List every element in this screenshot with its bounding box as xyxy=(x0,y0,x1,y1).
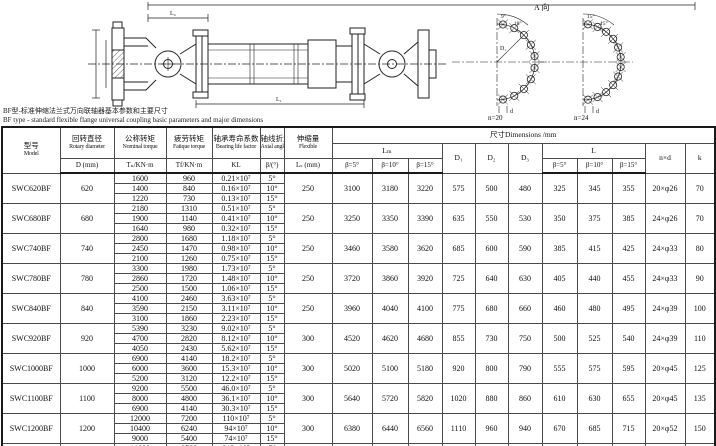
col-header-l-beta15: β=15° xyxy=(612,159,645,174)
cell-axial-angle: 10° xyxy=(260,424,284,434)
cell-bearing-life: 0.13×10⁷ xyxy=(212,194,260,204)
cell-nominal-torque: 6900 xyxy=(114,354,166,364)
cell-lm-beta10: 6440 xyxy=(372,414,408,444)
bolt-view-n20: D₁ 9° 18° d n=20 xyxy=(452,13,547,122)
cell-fatigue-torque: 1310 xyxy=(166,204,212,214)
shaft-side-view: L₄ xyxy=(88,2,695,108)
cell-nominal-torque: 3590 xyxy=(114,304,166,314)
cell-flexible: 300 xyxy=(284,384,332,414)
col-header-lm-beta15: β=15° xyxy=(408,159,442,174)
cell-lm-beta10: 5100 xyxy=(372,354,408,384)
cell-l-beta10: 575 xyxy=(577,354,612,384)
cell-bearing-life: 3.11×10⁷ xyxy=(212,304,260,314)
cell-axial-angle: 15° xyxy=(260,374,284,384)
cell-fatigue-torque: 4800 xyxy=(166,394,212,404)
cell-lm-beta15: 3390 xyxy=(408,204,442,234)
table-row: SWC1200BF1200120007200110×10⁷5°300638064… xyxy=(2,414,715,424)
cell-lm-beta5: 3100 xyxy=(332,173,372,204)
cell-k: 150 xyxy=(685,414,715,444)
col-header-k: k xyxy=(685,144,715,174)
cell-model: SWC920BF xyxy=(2,324,60,354)
cell-fatigue-torque: 1680 xyxy=(166,234,212,244)
cell-k: 70 xyxy=(685,173,715,204)
cell-nxd: 24×φ33 xyxy=(645,264,685,294)
cell-bearing-life: 94×10⁷ xyxy=(212,424,260,434)
dim-label-d: d xyxy=(596,109,599,115)
cell-nominal-torque: 1400 xyxy=(114,184,166,194)
cell-nxd: 20×φ45 xyxy=(645,354,685,384)
cell-rotary-diameter: 1000 xyxy=(60,354,114,384)
cell-d2: 600 xyxy=(475,234,508,264)
cell-fatigue-torque: 5500 xyxy=(166,384,212,394)
cell-k: 135 xyxy=(685,384,715,414)
cell-rotary-diameter: 840 xyxy=(60,294,114,324)
caption-block: BF型-标准伸缩法兰式万向联轴器基本参数和主要尺寸 BF type - stan… xyxy=(3,107,263,124)
unit-fatigue-torque: Tf/KN·m xyxy=(166,159,212,174)
cell-k: 80 xyxy=(685,234,715,264)
angle-label: 15° xyxy=(587,13,595,20)
cell-d1: 635 xyxy=(442,204,475,234)
cell-l-beta10: 480 xyxy=(577,294,612,324)
cell-fatigue-torque: 2430 xyxy=(166,344,212,354)
col-header-fatigue-torque: 疲劳转矩Fatique torque xyxy=(166,127,212,159)
cell-lm-beta5: 5020 xyxy=(332,354,372,384)
caption-cn: BF型-标准伸缩法兰式万向联轴器基本参数和主要尺寸 xyxy=(3,107,263,116)
dim-label-d1: D₁ xyxy=(500,46,506,52)
cell-bearing-life: 0.75×10⁷ xyxy=(212,254,260,264)
cell-lm-beta15: 6560 xyxy=(408,414,442,444)
cell-nominal-torque: 2860 xyxy=(114,274,166,284)
cell-d3: 940 xyxy=(508,414,542,444)
col-header-axial-angle: 轴线折角Axial angle xyxy=(260,127,284,159)
cell-flexible: 250 xyxy=(284,173,332,204)
cell-fatigue-torque: 4140 xyxy=(166,404,212,414)
cell-l-beta10: 415 xyxy=(577,234,612,264)
cell-nominal-torque: 12000 xyxy=(114,414,166,424)
cell-model: SWC680BF xyxy=(2,204,60,234)
cell-d2: 730 xyxy=(475,324,508,354)
cell-fatigue-torque: 2820 xyxy=(166,334,212,344)
cell-bearing-life: 110×10⁷ xyxy=(212,414,260,424)
cell-k: 125 xyxy=(685,354,715,384)
cell-fatigue-torque: 5400 xyxy=(166,434,212,444)
cell-model: SWC1000BF xyxy=(2,354,60,384)
cell-d1: 725 xyxy=(442,264,475,294)
cell-fatigue-torque: 960 xyxy=(166,173,212,184)
cell-fatigue-torque: 4140 xyxy=(166,354,212,364)
cell-fatigue-torque: 1860 xyxy=(166,314,212,324)
cell-nominal-torque: 2180 xyxy=(114,204,166,214)
cell-l-beta10: 440 xyxy=(577,264,612,294)
cell-fatigue-torque: 1500 xyxy=(166,284,212,294)
cell-axial-angle: 10° xyxy=(260,394,284,404)
cell-flexible: 250 xyxy=(284,234,332,264)
dim-label-d: d xyxy=(510,109,513,115)
cell-lm-beta15: 4100 xyxy=(408,294,442,324)
cell-l-beta15: 540 xyxy=(612,324,645,354)
cell-d3: 590 xyxy=(508,234,542,264)
angle-label: 9° xyxy=(501,13,506,20)
col-header-bearing-life: 轴承寿命系数Bearing life factor xyxy=(212,127,260,159)
cell-nominal-torque: 6900 xyxy=(114,404,166,414)
cell-bearing-life: 30.3×10⁷ xyxy=(212,404,260,414)
cell-nominal-torque: 2450 xyxy=(114,244,166,254)
cell-l-beta15: 455 xyxy=(612,264,645,294)
cell-nominal-torque: 4100 xyxy=(114,294,166,304)
cell-nominal-torque: 4700 xyxy=(114,334,166,344)
n20-label: n=20 xyxy=(488,114,503,122)
cell-lm-beta5: 3960 xyxy=(332,294,372,324)
cell-axial-angle: 15° xyxy=(260,344,284,354)
table-row: SWC740BF740280016801.18×10⁷5°25034603580… xyxy=(2,234,715,244)
cell-fatigue-torque: 2460 xyxy=(166,294,212,304)
cell-nominal-torque: 8000 xyxy=(114,394,166,404)
view-a-label: A 向 xyxy=(534,2,549,12)
cell-lm-beta5: 3250 xyxy=(332,204,372,234)
cell-axial-angle: 10° xyxy=(260,364,284,374)
dim-label-l1: L₁ xyxy=(276,97,282,103)
cell-lm-beta5: 3720 xyxy=(332,264,372,294)
cell-d1: 575 xyxy=(442,173,475,204)
cell-bearing-life: 36.1×10⁷ xyxy=(212,394,260,404)
cell-nxd: 20×φ52 xyxy=(645,414,685,444)
cell-nxd: 24×φ39 xyxy=(645,294,685,324)
cell-fatigue-torque: 7200 xyxy=(166,414,212,424)
cell-bearing-life: 0.16×10⁷ xyxy=(212,184,260,194)
cell-d1: 1110 xyxy=(442,414,475,444)
col-header-model: 型号Model xyxy=(2,127,60,173)
cell-l-beta5: 500 xyxy=(542,324,577,354)
cell-fatigue-torque: 3230 xyxy=(166,324,212,334)
table-row: SWC920BF920539032309.02×10⁷5°30045204620… xyxy=(2,324,715,334)
col-header-nxd: n×d xyxy=(645,144,685,174)
cell-nominal-torque: 9000 xyxy=(114,434,166,444)
cell-l-beta10: 630 xyxy=(577,384,612,414)
cell-axial-angle: 10° xyxy=(260,244,284,254)
cell-nominal-torque: 1220 xyxy=(114,194,166,204)
cell-axial-angle: 5° xyxy=(260,354,284,364)
cell-fatigue-torque: 730 xyxy=(166,194,212,204)
cell-d1: 775 xyxy=(442,294,475,324)
cell-rotary-diameter: 620 xyxy=(60,173,114,204)
col-header-dimensions: 尺寸Dimensions /mm xyxy=(332,127,715,144)
cell-axial-angle: 5° xyxy=(260,234,284,244)
cell-nominal-torque: 3300 xyxy=(114,264,166,274)
cell-d1: 685 xyxy=(442,234,475,264)
cell-lm-beta5: 5640 xyxy=(332,384,372,414)
cell-lm-beta5: 6380 xyxy=(332,414,372,444)
cell-axial-angle: 15° xyxy=(260,404,284,414)
cell-bearing-life: 74×10⁷ xyxy=(212,434,260,444)
cell-nominal-torque: 2500 xyxy=(114,284,166,294)
cell-lm-beta15: 3620 xyxy=(408,234,442,264)
cell-axial-angle: 10° xyxy=(260,304,284,314)
cell-d3: 750 xyxy=(508,324,542,354)
parameters-table: 型号Model 回转直径Rotary diameter 公称转矩Nominal … xyxy=(1,126,716,446)
cell-nominal-torque: 2100 xyxy=(114,254,166,264)
cell-fatigue-torque: 840 xyxy=(166,184,212,194)
cell-axial-angle: 15° xyxy=(260,284,284,294)
cell-lm-beta10: 3350 xyxy=(372,204,408,234)
table-row: SWC1000BF10006900414018.2×10⁷5°300502051… xyxy=(2,354,715,364)
cell-axial-angle: 5° xyxy=(260,414,284,424)
cell-bearing-life: 5.62×10⁷ xyxy=(212,344,260,354)
cell-d2: 550 xyxy=(475,204,508,234)
cell-d3: 860 xyxy=(508,384,542,414)
col-header-d2: D₂ xyxy=(475,144,508,174)
cell-rotary-diameter: 1100 xyxy=(60,384,114,414)
col-header-lm-beta10: β=10° xyxy=(372,159,408,174)
cell-l-beta10: 345 xyxy=(577,173,612,204)
cell-model: SWC740BF xyxy=(2,234,60,264)
cell-flexible: 250 xyxy=(284,204,332,234)
cell-fatigue-torque: 1140 xyxy=(166,214,212,224)
cell-fatigue-torque: 3120 xyxy=(166,374,212,384)
n24-label: n=24 xyxy=(574,114,589,122)
cell-axial-angle: 10° xyxy=(260,334,284,344)
cell-l-beta5: 385 xyxy=(542,234,577,264)
document-page: L₄ xyxy=(0,0,716,446)
cell-bearing-life: 18.2×10⁷ xyxy=(212,354,260,364)
cell-bearing-life: 46.0×10⁷ xyxy=(212,384,260,394)
table-row: SWC620BF62016009600.21×10⁷5°250310031803… xyxy=(2,173,715,184)
cell-k: 110 xyxy=(685,324,715,354)
cell-axial-angle: 15° xyxy=(260,434,284,444)
col-header-flexible: 伸缩量Flexible xyxy=(284,127,332,159)
cell-bearing-life: 8.12×10⁷ xyxy=(212,334,260,344)
cell-nxd: 24×φ39 xyxy=(645,324,685,354)
cell-d2: 500 xyxy=(475,173,508,204)
cell-model: SWC1100BF xyxy=(2,384,60,414)
cell-axial-angle: 10° xyxy=(260,274,284,284)
cell-l-beta15: 715 xyxy=(612,414,645,444)
cell-fatigue-torque: 2150 xyxy=(166,304,212,314)
cell-lm-beta15: 5180 xyxy=(408,354,442,384)
cell-bearing-life: 0.98×10⁷ xyxy=(212,244,260,254)
cell-flexible: 250 xyxy=(284,264,332,294)
cell-l-beta15: 385 xyxy=(612,204,645,234)
cell-nominal-torque: 9200 xyxy=(114,384,166,394)
cell-nominal-torque: 10400 xyxy=(114,424,166,434)
cell-nominal-torque: 1900 xyxy=(114,214,166,224)
dim-label-l4: L₄ xyxy=(170,11,176,17)
cell-lm-beta15: 5820 xyxy=(408,384,442,414)
cell-fatigue-torque: 1720 xyxy=(166,274,212,284)
cell-lm-beta5: 4520 xyxy=(332,324,372,354)
cell-l-beta15: 495 xyxy=(612,294,645,324)
cell-d1: 855 xyxy=(442,324,475,354)
cell-lm-beta10: 3580 xyxy=(372,234,408,264)
cell-nominal-torque: 5200 xyxy=(114,374,166,384)
cell-nominal-torque: 1640 xyxy=(114,224,166,234)
cell-lm-beta5: 3460 xyxy=(332,234,372,264)
cell-k: 90 xyxy=(685,264,715,294)
cell-axial-angle: 10° xyxy=(260,214,284,224)
cell-nxd: 20×φ26 xyxy=(645,173,685,204)
unit-bearing-life: KL xyxy=(212,159,260,174)
cell-bearing-life: 0.41×10⁷ xyxy=(212,214,260,224)
cell-fatigue-torque: 6240 xyxy=(166,424,212,434)
cell-l-beta5: 610 xyxy=(542,384,577,414)
cell-fatigue-torque: 1980 xyxy=(166,264,212,274)
cell-axial-angle: 15° xyxy=(260,254,284,264)
cell-flexible: 250 xyxy=(284,294,332,324)
cell-d3: 630 xyxy=(508,264,542,294)
col-header-l-beta5: β=5° xyxy=(542,159,577,174)
col-header-d3: D₃ xyxy=(508,144,542,174)
cell-bearing-life: 1.48×10⁷ xyxy=(212,274,260,284)
cell-nominal-torque: 1600 xyxy=(114,173,166,184)
cell-d2: 680 xyxy=(475,294,508,324)
cell-lm-beta10: 5720 xyxy=(372,384,408,414)
cell-lm-beta15: 3220 xyxy=(408,173,442,204)
cell-l-beta15: 595 xyxy=(612,354,645,384)
cell-model: SWC840BF xyxy=(2,294,60,324)
col-header-lm-beta5: β=5° xyxy=(332,159,372,174)
cell-l-beta5: 670 xyxy=(542,414,577,444)
cell-k: 70 xyxy=(685,204,715,234)
cell-nominal-torque: 5390 xyxy=(114,324,166,334)
col-header-l: L xyxy=(542,144,645,159)
cell-axial-angle: 15° xyxy=(260,314,284,324)
cell-rotary-diameter: 920 xyxy=(60,324,114,354)
cell-nxd: 24×φ26 xyxy=(645,204,685,234)
cell-l-beta5: 555 xyxy=(542,354,577,384)
cell-d2: 800 xyxy=(475,354,508,384)
cell-fatigue-torque: 3600 xyxy=(166,364,212,374)
cell-axial-angle: 15° xyxy=(260,224,284,234)
cell-bearing-life: 1.73×10⁷ xyxy=(212,264,260,274)
cell-l-beta5: 350 xyxy=(542,204,577,234)
bolt-view-n24: 15° 15° d n=24 xyxy=(538,13,633,122)
cell-bearing-life: 0.21×10⁷ xyxy=(212,173,260,184)
cell-fatigue-torque: 980 xyxy=(166,224,212,234)
cell-axial-angle: 5° xyxy=(260,173,284,184)
cell-d3: 660 xyxy=(508,294,542,324)
cell-d1: 920 xyxy=(442,354,475,384)
cell-d3: 480 xyxy=(508,173,542,204)
col-header-l-beta10: β=10° xyxy=(577,159,612,174)
cell-axial-angle: 5° xyxy=(260,204,284,214)
cell-bearing-life: 9.02×10⁷ xyxy=(212,324,260,334)
cell-bearing-life: 2.23×10⁷ xyxy=(212,314,260,324)
cell-nominal-torque: 2800 xyxy=(114,234,166,244)
cell-lm-beta10: 3860 xyxy=(372,264,408,294)
cell-nominal-torque: 6000 xyxy=(114,364,166,374)
cell-lm-beta15: 3920 xyxy=(408,264,442,294)
angle-label: 18° xyxy=(514,20,522,27)
unit-axial-angle: β/(°) xyxy=(260,159,284,174)
cell-d2: 960 xyxy=(475,414,508,444)
cell-bearing-life: 15.3×10⁷ xyxy=(212,364,260,374)
cell-bearing-life: 3.63×10⁷ xyxy=(212,294,260,304)
cell-nominal-torque: 4050 xyxy=(114,344,166,354)
col-header-lm: Lₘ xyxy=(332,144,442,159)
cell-nominal-torque: 3100 xyxy=(114,314,166,324)
cell-lm-beta10: 4040 xyxy=(372,294,408,324)
table-row: SWC680BF680218013100.51×10⁷5°25032503350… xyxy=(2,204,715,214)
cell-l-beta15: 355 xyxy=(612,173,645,204)
cell-bearing-life: 1.06×10⁷ xyxy=(212,284,260,294)
cell-rotary-diameter: 1200 xyxy=(60,414,114,444)
cell-rotary-diameter: 680 xyxy=(60,204,114,234)
col-header-nominal-torque: 公称转矩Nominal torque xyxy=(114,127,166,159)
table-row: SWC780BF780330019801.73×10⁷5°25037203860… xyxy=(2,264,715,274)
cell-l-beta10: 375 xyxy=(577,204,612,234)
cell-flexible: 300 xyxy=(284,354,332,384)
cell-d1: 1020 xyxy=(442,384,475,414)
cell-bearing-life: 1.18×10⁷ xyxy=(212,234,260,244)
cell-model: SWC1200BF xyxy=(2,414,60,444)
table-body: SWC620BF62016009600.21×10⁷5°250310031803… xyxy=(2,173,715,446)
cell-lm-beta15: 4680 xyxy=(408,324,442,354)
cell-l-beta5: 325 xyxy=(542,173,577,204)
cell-nxd: 20×φ45 xyxy=(645,384,685,414)
cell-fatigue-torque: 1470 xyxy=(166,244,212,254)
cell-nxd: 24×φ33 xyxy=(645,234,685,264)
cell-axial-angle: 15° xyxy=(260,194,284,204)
cell-bearing-life: 12.2×10⁷ xyxy=(212,374,260,384)
cell-d2: 640 xyxy=(475,264,508,294)
cell-model: SWC620BF xyxy=(2,173,60,204)
cell-axial-angle: 10° xyxy=(260,184,284,194)
cell-rotary-diameter: 780 xyxy=(60,264,114,294)
unit-flexible: Lₛ (mm) xyxy=(284,159,332,174)
cell-axial-angle: 5° xyxy=(260,264,284,274)
cell-fatigue-torque: 1260 xyxy=(166,254,212,264)
cell-rotary-diameter: 740 xyxy=(60,234,114,264)
cell-l-beta15: 425 xyxy=(612,234,645,264)
cell-flexible: 300 xyxy=(284,324,332,354)
cell-d2: 880 xyxy=(475,384,508,414)
cell-lm-beta10: 3180 xyxy=(372,173,408,204)
cell-d3: 790 xyxy=(508,354,542,384)
col-header-d1: D₁ xyxy=(442,144,475,174)
cell-bearing-life: 0.32×10⁷ xyxy=(212,224,260,234)
cell-l-beta5: 405 xyxy=(542,264,577,294)
cell-bearing-life: 0.51×10⁷ xyxy=(212,204,260,214)
cell-axial-angle: 5° xyxy=(260,384,284,394)
col-header-rotary-diameter: 回转直径Rotary diameter xyxy=(60,127,114,159)
unit-nominal-torque: Tₙ/KN·m xyxy=(114,159,166,174)
cell-d3: 530 xyxy=(508,204,542,234)
cell-l-beta10: 525 xyxy=(577,324,612,354)
caption-en: BF type - standard flexible flange unive… xyxy=(3,116,263,125)
cell-l-beta15: 655 xyxy=(612,384,645,414)
cell-flexible: 300 xyxy=(284,414,332,444)
cell-lm-beta10: 4620 xyxy=(372,324,408,354)
cell-model: SWC780BF xyxy=(2,264,60,294)
table-row: SWC840BF840410024603.63×10⁷5°25039604040… xyxy=(2,294,715,304)
cell-k: 100 xyxy=(685,294,715,324)
table-row: SWC1100BF11009200550046.0×10⁷5°300564057… xyxy=(2,384,715,394)
cell-l-beta10: 685 xyxy=(577,414,612,444)
unit-rotary-diameter: D (mm) xyxy=(60,159,114,174)
cell-l-beta5: 460 xyxy=(542,294,577,324)
cell-axial-angle: 5° xyxy=(260,324,284,334)
cell-axial-angle: 5° xyxy=(260,294,284,304)
